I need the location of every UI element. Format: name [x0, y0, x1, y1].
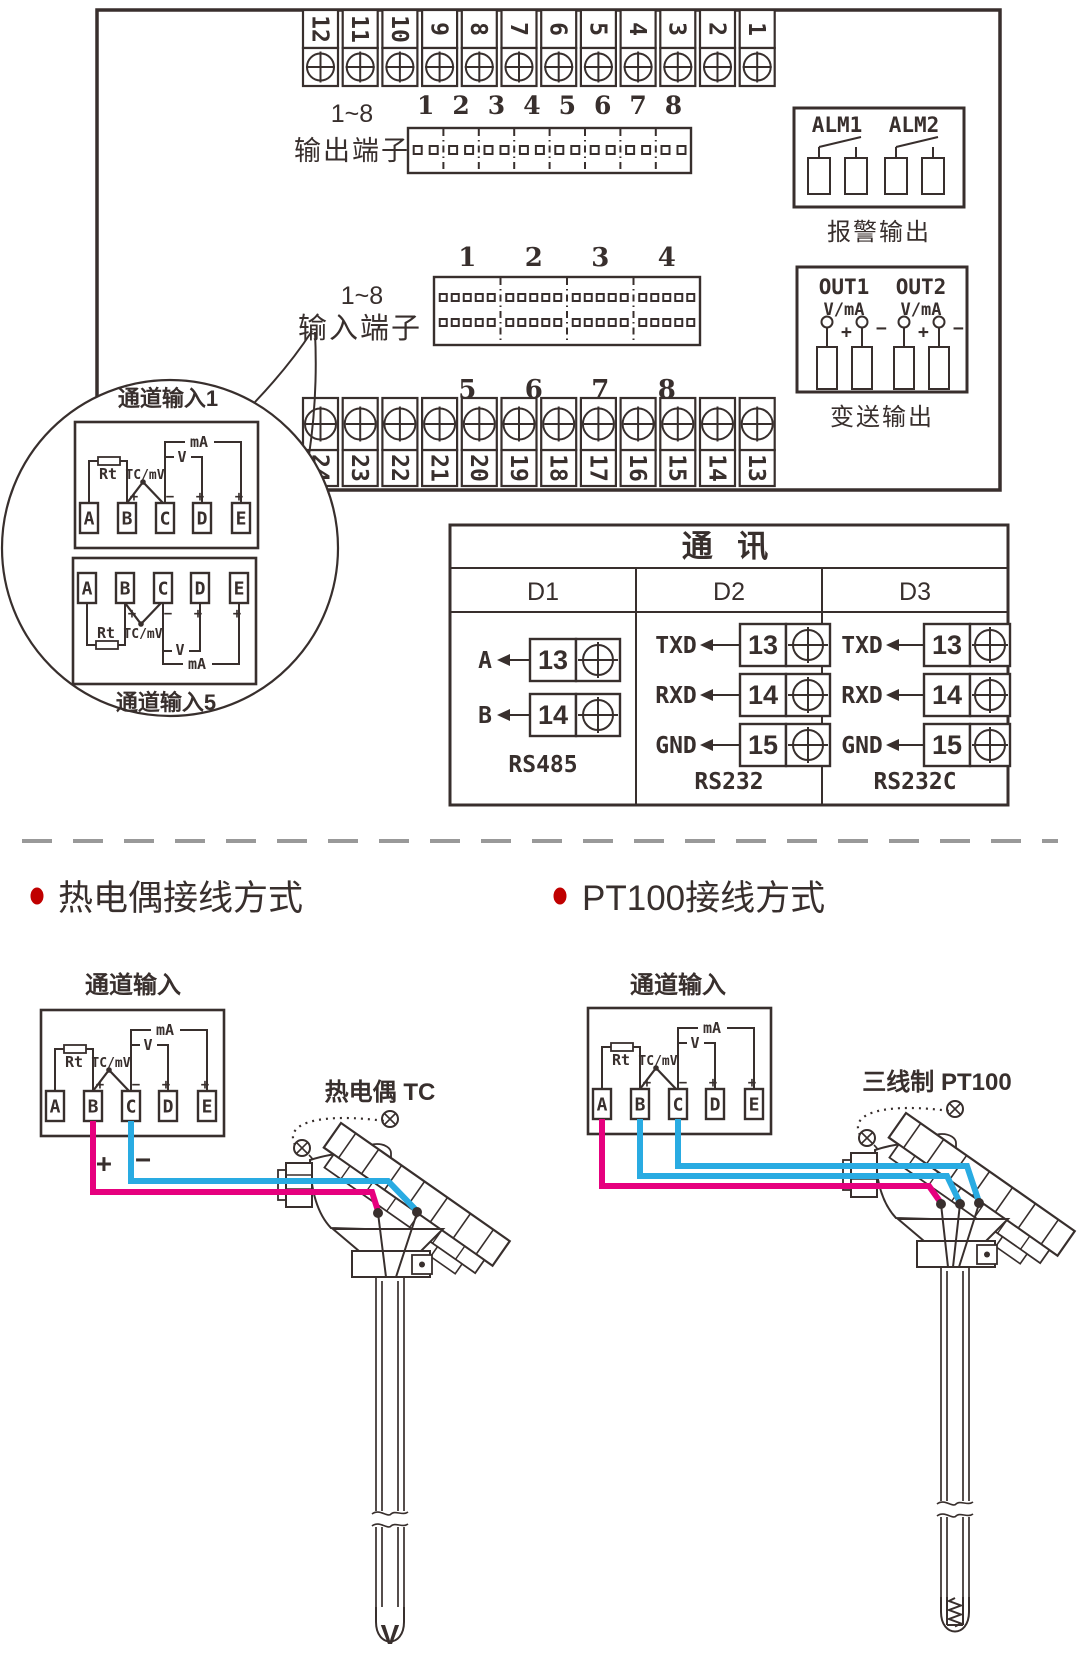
- channel-input-label: 通道输入: [85, 971, 181, 999]
- pin-number: 7: [629, 91, 646, 120]
- alm1-label: ALM1: [812, 113, 863, 137]
- wiring-diagram-page: A B C D E + − + + Rt TC/mV V mA A B C D: [0, 0, 1080, 1664]
- terminal-cell: 15: [660, 398, 695, 486]
- pin-number: 4: [523, 91, 540, 120]
- terminal-cell: 1: [740, 10, 775, 86]
- pin-number: 6: [525, 375, 543, 405]
- pin-number: 2: [525, 243, 543, 273]
- pin-number: 1: [417, 91, 434, 120]
- wire-polarity-plus: +: [96, 1149, 112, 1179]
- connection-dot: [955, 1199, 965, 1209]
- terminal-cell: 8: [462, 10, 497, 86]
- terminal-cell: 22: [382, 398, 417, 486]
- terminal-number: 14: [932, 680, 962, 710]
- terminal-cell: 10: [382, 10, 417, 86]
- terminal-cell: 13: [740, 398, 775, 486]
- signal-label: TXD: [841, 633, 883, 659]
- terminal-number: 12: [306, 15, 332, 43]
- comm-column-header: D3: [899, 578, 931, 606]
- out1-label: OUT1: [819, 275, 870, 299]
- terminal-number: 7: [505, 22, 531, 36]
- alarm-caption: 报警输出: [827, 219, 931, 246]
- terminal-number: 15: [664, 454, 690, 482]
- alm2-label: ALM2: [889, 113, 940, 137]
- terminal-cell: 12: [303, 10, 338, 86]
- output-range-label: 1~8: [331, 100, 373, 128]
- terminal-number: 13: [743, 454, 769, 482]
- terminal-number: 13: [538, 645, 568, 675]
- terminal-cell: 17: [581, 398, 616, 486]
- terminal-number: 1: [743, 22, 769, 36]
- terminal-number: 15: [932, 730, 962, 760]
- terminal-number: 14: [703, 454, 729, 482]
- polarity-sign: +: [841, 322, 852, 343]
- pin-number: 1: [458, 243, 476, 273]
- signal-label: TXD: [655, 633, 697, 659]
- terminal-cell: 14: [700, 398, 735, 486]
- terminal-number: 11: [346, 15, 372, 43]
- channel1-wiring: [75, 422, 258, 548]
- signal-label: A: [478, 648, 492, 674]
- terminal-number: 23: [346, 454, 372, 482]
- terminal-cell: 7: [502, 10, 537, 86]
- pt-section-heading: PT100接线方式: [582, 879, 825, 918]
- tc-sensor-label: 热电偶 TC: [325, 1079, 436, 1106]
- channel-input-wiring: [41, 1010, 224, 1136]
- pin-number: 5: [458, 375, 476, 405]
- terminal-number: 15: [748, 730, 778, 760]
- tc-wiring-section: 通道输入 热电偶 TC V + −: [41, 971, 510, 1650]
- terminal-number: 10: [386, 15, 412, 43]
- terminal-number: 14: [748, 680, 778, 710]
- pin-number: 3: [488, 91, 505, 120]
- output-name-label: 输出端子: [294, 136, 410, 166]
- pin-number: 8: [665, 91, 682, 120]
- comm-caption: RS232: [694, 769, 763, 795]
- terminal-number: 2: [703, 22, 729, 36]
- polarity-sign: −: [953, 318, 964, 339]
- out2-label: OUT2: [896, 275, 947, 299]
- transmit-caption: 变送输出: [830, 404, 934, 431]
- terminal-cell: 19: [502, 398, 537, 486]
- terminal-number: 6: [545, 22, 571, 36]
- terminal-cell: 18: [541, 398, 576, 486]
- terminal-cell: 11: [343, 10, 378, 86]
- bullet-icon: [31, 888, 44, 905]
- terminal-number: 13: [748, 630, 778, 660]
- pin-number: 5: [559, 91, 576, 120]
- terminal-number: 18: [545, 454, 571, 482]
- pin-number: 8: [658, 375, 676, 405]
- terminal-cell: 5: [581, 10, 616, 86]
- terminal-number: 4: [624, 22, 650, 36]
- bullet-icon: [554, 888, 567, 905]
- signal-label: B: [478, 703, 492, 729]
- channel5-wiring: [73, 558, 256, 684]
- tc-section-heading: 热电偶接线方式: [58, 879, 303, 918]
- pt100-sensor-label: 三线制 PT100: [862, 1069, 1011, 1096]
- terminal-number: 17: [584, 454, 610, 482]
- pin-number: 2: [452, 91, 469, 120]
- terminal-cell: 4: [621, 10, 656, 86]
- terminal-cell: 6: [541, 10, 576, 86]
- terminal-number: 19: [505, 454, 531, 482]
- comm-column-header: D2: [713, 578, 745, 606]
- pin-number: 3: [591, 243, 609, 273]
- pin-number: 4: [658, 243, 676, 273]
- connection-dot: [373, 1208, 383, 1218]
- terminal-number: 3: [664, 22, 690, 36]
- comm-table: 通 讯 D1RS485A13B14D2RS232TXD13RXD14GND15D…: [450, 525, 1010, 805]
- terminal-cell: 16: [621, 398, 656, 486]
- pin-number: 6: [594, 91, 611, 120]
- terminal-number: 21: [426, 454, 452, 482]
- polarity-sign: −: [876, 318, 887, 339]
- pin-number: 7: [591, 375, 609, 405]
- terminal-number: 22: [386, 454, 412, 482]
- signal-label: GND: [841, 733, 883, 759]
- comm-caption: RS485: [508, 752, 577, 778]
- pt100-wiring-section: 通道输入 三线制 PT100: [588, 971, 1075, 1632]
- input-range-label: 1~8: [341, 282, 383, 310]
- terminal-number: 16: [624, 454, 650, 482]
- connection-dot: [936, 1199, 946, 1209]
- signal-label: RXD: [655, 683, 697, 709]
- terminal-cell: 21: [422, 398, 457, 486]
- terminal-cell: 20: [462, 398, 497, 486]
- channel1-label: 通道输入1: [118, 386, 218, 411]
- channel-input-wiring: [588, 1008, 771, 1134]
- terminal-number: 5: [584, 22, 610, 36]
- channel5-label: 通道输入5: [116, 690, 216, 715]
- signal-label: GND: [655, 733, 697, 759]
- wire-polarity-minus: −: [135, 1145, 151, 1175]
- input-name-label: 输入端子: [298, 312, 422, 345]
- terminal-cell: 2: [700, 10, 735, 86]
- terminal-cell: 23: [343, 398, 378, 486]
- connection-dot: [412, 1207, 422, 1217]
- junction-v-icon: V: [381, 1619, 400, 1650]
- terminal-number: 8: [465, 22, 491, 36]
- terminal-number: 13: [932, 630, 962, 660]
- signal-label: RXD: [841, 683, 883, 709]
- comm-column-header: D1: [527, 578, 559, 606]
- diagram-canvas: A B C D E + − + + Rt TC/mV V mA A B C D: [0, 0, 1080, 1664]
- comm-title: 通 讯: [682, 529, 777, 564]
- terminal-number: 14: [538, 700, 568, 730]
- polarity-sign: +: [918, 322, 929, 343]
- terminal-number: 20: [465, 454, 491, 482]
- channel-input-label: 通道输入: [630, 971, 726, 999]
- comm-caption: RS232C: [873, 769, 956, 795]
- terminal-cell: 3: [660, 10, 695, 86]
- connection-dot: [974, 1198, 984, 1208]
- terminal-number: 9: [426, 22, 452, 36]
- terminal-cell: 9: [422, 10, 457, 86]
